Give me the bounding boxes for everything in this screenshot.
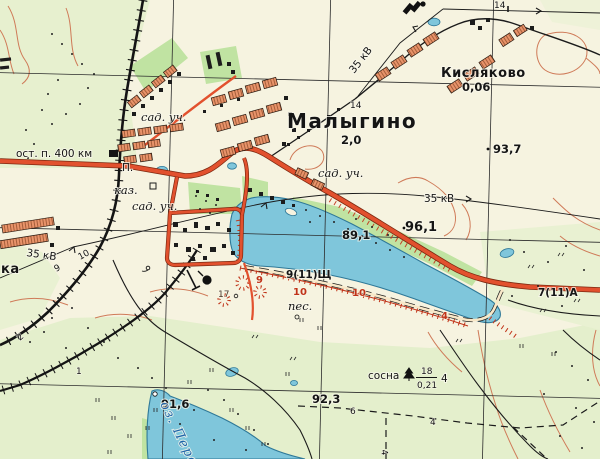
pole-height-label-top: 14 xyxy=(494,1,506,11)
spot-height-937: 93,7 xyxy=(493,142,521,156)
settlement-label-malygino: Малыгино xyxy=(287,109,417,133)
platform-label: П. xyxy=(122,162,133,174)
forest-spacing: 4 xyxy=(441,373,448,385)
forest-species-label: сосна xyxy=(368,370,399,382)
edge-settlement-partial: ка xyxy=(1,262,20,277)
railway-halt-label: ост. п. 400 км xyxy=(16,148,92,160)
scarp-height-9: 9 xyxy=(256,275,263,286)
water-edge-mark xyxy=(153,392,157,396)
malygino-capacity: 2,0 xyxy=(341,133,361,147)
trail-number-6: 6 xyxy=(350,407,356,417)
pond xyxy=(228,163,237,169)
road-spec-gravel: 9(11)Щ xyxy=(286,269,332,281)
road-spec-asphalt: 7(11)А xyxy=(538,287,579,299)
garden-plots-label-2: сад. уч. xyxy=(132,199,177,213)
pond xyxy=(291,380,298,385)
spot-height-961: 96,1 xyxy=(405,220,437,235)
settlement-label-kislyakovo: Кисляково xyxy=(441,66,526,81)
elevation-dot xyxy=(487,148,490,151)
scarp-height-10a: 10 xyxy=(293,287,307,298)
kislyakovo-capacity: 0,06 xyxy=(462,80,490,94)
spot-height-923: 92,3 xyxy=(312,392,340,406)
garden-plots-label-3: сад. уч. xyxy=(318,166,363,180)
pit-depth-17: 17 xyxy=(218,290,229,300)
cutting-height-1: 1 xyxy=(76,367,82,377)
pole-height-label-diag: 14 xyxy=(350,101,362,111)
map-canvas: Малыгино 2,0 Кисляково 0,06 93,7 96,1 89… xyxy=(0,0,600,459)
railway-halt-symbol xyxy=(109,150,118,157)
forest-trunk: 0,21 xyxy=(417,381,437,391)
sand-label: пес. xyxy=(288,299,312,313)
barracks-label: каз. xyxy=(114,183,138,197)
spot-height-891: 89,1 xyxy=(342,228,370,242)
scarp-height-10b: 10 xyxy=(352,288,366,299)
scarp-height-4: 4 xyxy=(441,311,448,322)
forest-height: 18 xyxy=(421,367,433,377)
garden-plots-label-1: сад. уч. xyxy=(141,110,186,124)
topographic-map: Малыгино 2,0 Кисляково 0,06 93,7 96,1 89… xyxy=(0,0,600,459)
trail-number-4a: 4 xyxy=(430,418,436,428)
power-voltage-label-mid: 35 кВ xyxy=(424,193,454,205)
